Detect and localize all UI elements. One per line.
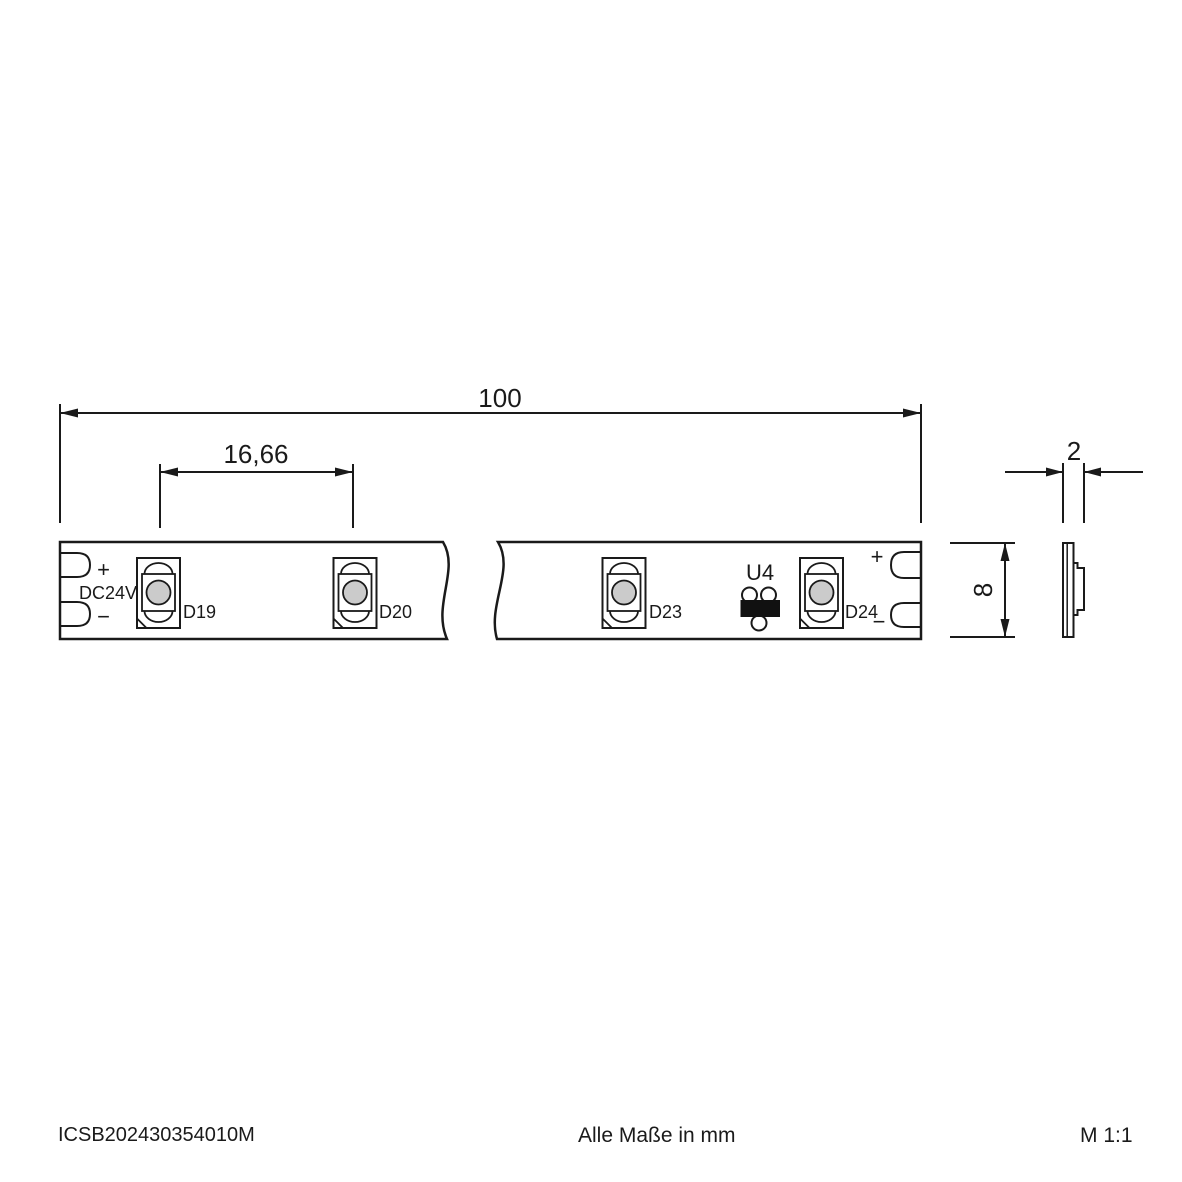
arrowhead-right bbox=[1084, 468, 1101, 477]
polarity-minus-left: − bbox=[88, 604, 119, 629]
ic-label-u4: U4 bbox=[740, 560, 780, 585]
led-label-d19: D19 bbox=[183, 602, 216, 623]
arrowhead-left bbox=[160, 468, 178, 477]
voltage-label: DC24V bbox=[79, 583, 137, 604]
polarity-minus-right: − bbox=[863, 609, 895, 634]
strip-segment-right bbox=[495, 542, 921, 639]
drawing-linework bbox=[0, 0, 1182, 1182]
strip-height-value: 8 bbox=[970, 570, 996, 610]
led-die bbox=[810, 581, 834, 605]
led-die bbox=[343, 581, 367, 605]
thickness-value: 2 bbox=[1044, 437, 1104, 467]
led-profile-bump bbox=[1074, 563, 1085, 615]
led-package-d24 bbox=[800, 558, 843, 628]
arrowhead-right bbox=[335, 468, 353, 477]
arrowhead-bottom bbox=[1001, 619, 1010, 637]
ic-body bbox=[741, 600, 781, 617]
led-die bbox=[147, 581, 171, 605]
scale-label: M 1:1 bbox=[1080, 1124, 1133, 1148]
led-strip-technical-drawing: 100 16,66 2 8 + DC24V − D19 D20 D23 D24 … bbox=[0, 0, 1182, 1182]
led-package-d20 bbox=[334, 558, 377, 628]
led-die bbox=[612, 581, 636, 605]
led-package-d19 bbox=[137, 558, 180, 628]
arrowhead-right bbox=[903, 409, 921, 418]
polarity-plus-left: + bbox=[88, 557, 119, 582]
thickness-dimension bbox=[1005, 463, 1143, 523]
total-length-dimension bbox=[60, 404, 921, 523]
led-label-d20: D20 bbox=[379, 602, 412, 623]
led-package-d23 bbox=[603, 558, 646, 628]
ic-pin bbox=[752, 616, 767, 631]
total-length-value: 100 bbox=[460, 384, 540, 414]
polarity-plus-right: + bbox=[861, 544, 893, 569]
arrowhead-left bbox=[1046, 468, 1063, 477]
led-pitch-value: 16,66 bbox=[206, 440, 306, 470]
strip-side-profile bbox=[1063, 543, 1084, 637]
arrowhead-top bbox=[1001, 543, 1010, 561]
arrowhead-left bbox=[60, 409, 78, 418]
article-number: ICSB202430354010M bbox=[58, 1124, 255, 1147]
units-note: Alle Maße in mm bbox=[578, 1124, 736, 1148]
led-pitch-dimension bbox=[160, 464, 353, 528]
led-label-d23: D23 bbox=[649, 602, 682, 623]
